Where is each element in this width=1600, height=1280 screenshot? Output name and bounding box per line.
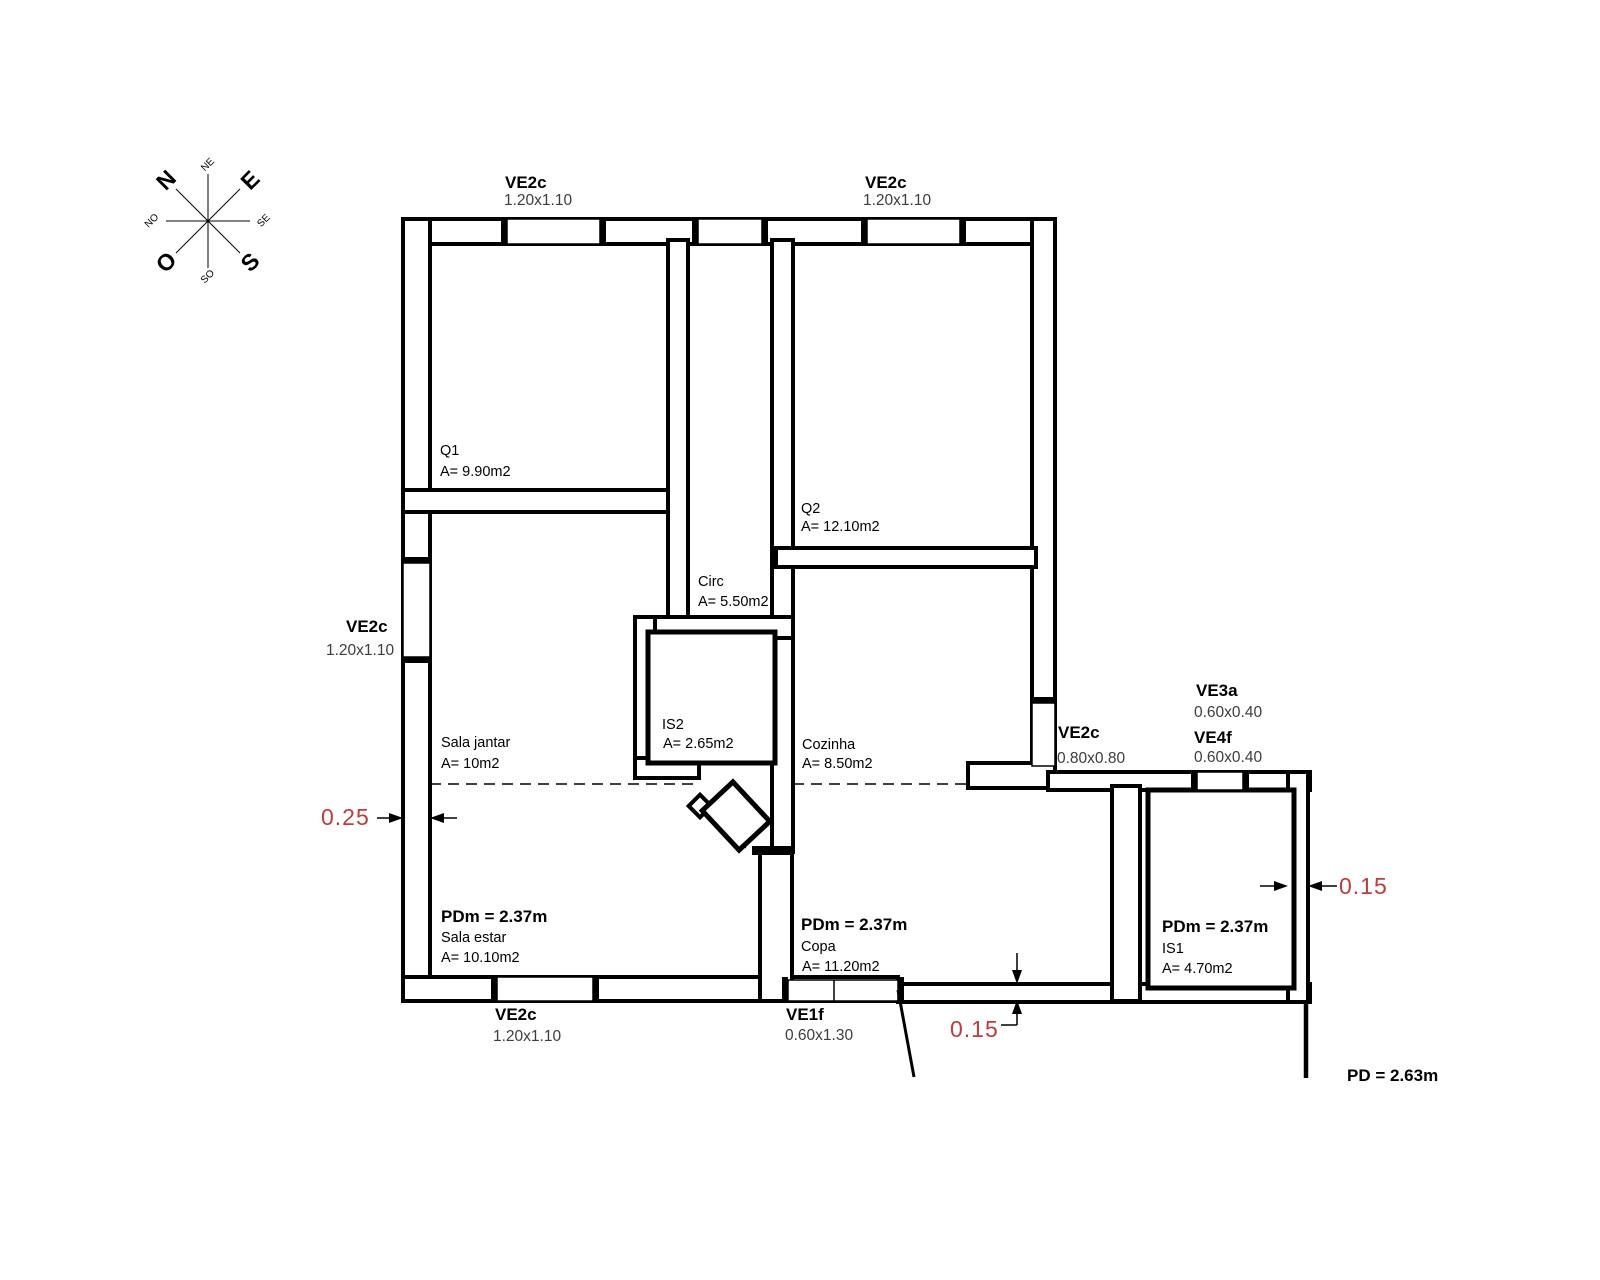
room-name: Sala estar [441,929,506,947]
arrowhead-left [430,813,444,823]
room-name: Q2 [801,500,820,518]
window-label-size: 0.60x0.40 [1194,749,1262,768]
window-cap [1191,772,1197,790]
window-cap [600,219,606,244]
door-ve1f [788,980,898,1001]
room-area: A= 2.65m2 [663,735,734,753]
window-label-size: 1.20x1.10 [504,192,572,211]
wall-q1-bottom [403,490,688,512]
arrowhead-down [1012,970,1022,984]
window-label-code: VE3a [1196,681,1238,701]
arrowhead-left [1308,881,1322,891]
window-cap [1243,772,1249,790]
window-cap [491,977,497,1001]
compass-no: NO [143,212,162,231]
window-label-size: 1.20x1.10 [326,642,394,661]
window-cap [403,657,430,663]
window-cap [593,977,599,1001]
window-label-code: VE2c [495,1005,537,1025]
compass-ne: NE [199,156,217,174]
room-name: Q1 [440,442,459,460]
window-label-code: VE2c [346,617,388,637]
room-outline-is1 [1148,790,1294,988]
window-cap [403,557,430,563]
compass-so: SO [199,268,217,286]
compass-rose [166,174,250,268]
dimension-text-025: 0.25 [321,806,370,829]
window-cap [762,219,768,244]
window-ve2c-top-left [507,219,600,244]
window-cap [861,219,867,244]
dimension-text-015-bottom: 0.15 [950,1018,999,1041]
compass-s: S [235,247,264,276]
wall-mid-right [1048,772,1310,790]
room-area: A= 9.90m2 [440,463,511,481]
room-ceiling-height: PDm = 2.37m [1162,917,1268,937]
window-label-code: VE2c [505,173,547,193]
floor-plan: N E S O NE SE SO NO VE2c 1.20x1.10 VE2c … [0,0,1600,1280]
window-label-code: VE1f [786,1005,824,1025]
window-cap [501,219,507,244]
room-area: A= 8.50m2 [802,755,873,773]
window-ve2c-right-small [1032,703,1055,766]
room-name: Circ [698,573,724,591]
room-name: IS2 [662,716,684,734]
window-label-code: VE2c [1058,723,1100,743]
window-label-size: 0.60x1.30 [785,1027,853,1046]
window-ve2c-bottom [497,977,593,1001]
room-name: Copa [801,938,836,956]
floor-plan-drawing: N E S O NE SE SO NO [0,0,1600,1280]
window-cap [692,219,698,244]
window-cap [960,219,966,244]
compass-n: N [151,165,181,195]
wall-q1-circ [668,240,688,622]
wall-right-upper [1032,219,1055,766]
ceiling-height-note: PD = 2.63m [1347,1066,1438,1086]
window-label-size: 1.20x1.10 [493,1028,561,1047]
opening-circ-top [698,219,762,244]
window-cap [782,977,788,1001]
window-ve2c-top-right [867,219,960,244]
door-leaf [702,782,770,850]
room-ceiling-height: PDm = 2.37m [441,907,547,927]
interior-walls [403,240,1140,1001]
compass-se: SE [255,212,272,229]
room-area: A= 10.10m2 [441,949,520,967]
room-area: A= 5.50m2 [698,593,769,611]
window-label-code: VE4f [1194,728,1232,748]
room-area: A= 10m2 [441,755,499,773]
window-cap [1031,697,1056,703]
room-name: IS1 [1162,940,1184,958]
window-ve2c-left [403,563,430,657]
room-name: Cozinha [802,736,855,754]
room-area: A= 12.10m2 [801,518,880,536]
room-name: Sala jantar [441,734,510,752]
dimension-text-015-right: 0.15 [1339,875,1388,898]
window-label-size: 0.60x0.40 [1194,704,1262,723]
wall-copa-is1 [1112,786,1140,1001]
compass-e: E [235,165,264,194]
window-ve3a-ve4f [1197,772,1243,790]
window-label-code: VE2c [865,173,907,193]
door-jamb-cap [752,846,793,855]
room-area: A= 11.20m2 [802,958,880,976]
room-area: A= 4.70m2 [1162,960,1233,978]
interior-door [689,782,770,850]
wall-q2-bottom [776,548,1036,567]
arrowhead-right [389,813,403,823]
compass-o: O [150,246,181,277]
room-ceiling-height: PDm = 2.37m [801,915,907,935]
window-label-size: 0.80x0.80 [1057,750,1125,769]
window-label-size: 1.20x1.10 [863,192,931,211]
